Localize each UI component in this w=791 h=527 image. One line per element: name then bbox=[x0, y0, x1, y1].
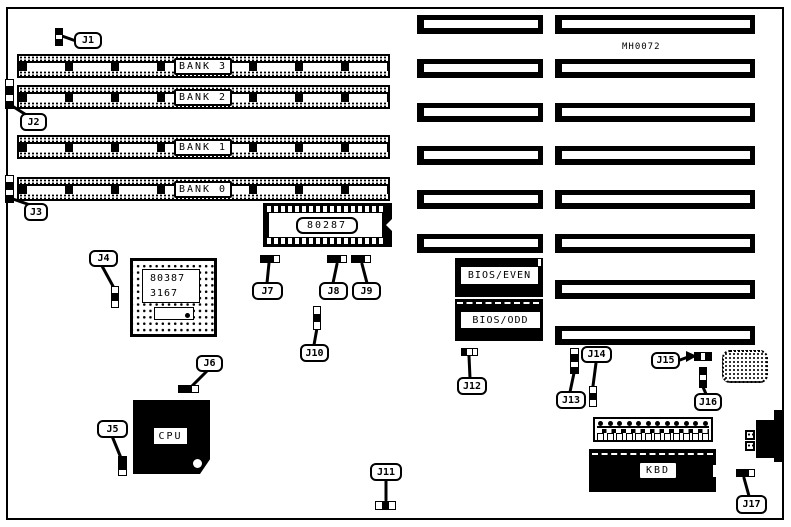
jumper-j13 bbox=[570, 348, 579, 374]
jumper-j14 bbox=[589, 386, 597, 407]
callout-j8: J8 bbox=[319, 282, 348, 300]
jumper-j17 bbox=[736, 469, 755, 477]
callout-j17: J17 bbox=[736, 495, 767, 514]
callout-j16: J16 bbox=[694, 393, 722, 411]
jumper-j5 bbox=[118, 456, 127, 476]
callout-j6: J6 bbox=[196, 355, 223, 372]
motherboard-diagram: BANK 3 BANK 2 BANK 1 BANK 0 MH0072 80287 bbox=[0, 0, 791, 527]
callout-j5: J5 bbox=[97, 420, 128, 438]
jumper-j2 bbox=[5, 79, 14, 109]
jumper-j9 bbox=[351, 255, 371, 263]
jumper-j11 bbox=[375, 501, 396, 510]
callout-j12: J12 bbox=[457, 377, 487, 395]
callout-j10: J10 bbox=[300, 344, 329, 362]
callout-j13: J13 bbox=[556, 391, 586, 409]
callout-j14: J14 bbox=[581, 346, 612, 363]
callout-j1: J1 bbox=[74, 32, 102, 49]
callout-j2: J2 bbox=[20, 113, 47, 131]
callout-j7: J7 bbox=[252, 282, 283, 300]
callout-j3: J3 bbox=[24, 203, 48, 221]
callout-j4: J4 bbox=[89, 250, 118, 267]
jumper-j6 bbox=[178, 385, 199, 393]
jumper-j8 bbox=[327, 255, 347, 263]
jumper-j12 bbox=[461, 348, 478, 356]
callout-j9: J9 bbox=[352, 282, 381, 300]
jumper-j10 bbox=[313, 306, 321, 330]
callout-j15: J15 bbox=[651, 352, 680, 369]
callout-j11: J11 bbox=[370, 463, 402, 481]
jumper-j15 bbox=[694, 352, 712, 361]
jumper-j16 bbox=[699, 367, 707, 388]
callout-tails bbox=[0, 0, 791, 527]
jumper-j3 bbox=[5, 175, 14, 203]
jumper-j1 bbox=[55, 28, 63, 46]
jumper-j7 bbox=[260, 255, 280, 263]
jumper-j4 bbox=[111, 286, 119, 308]
